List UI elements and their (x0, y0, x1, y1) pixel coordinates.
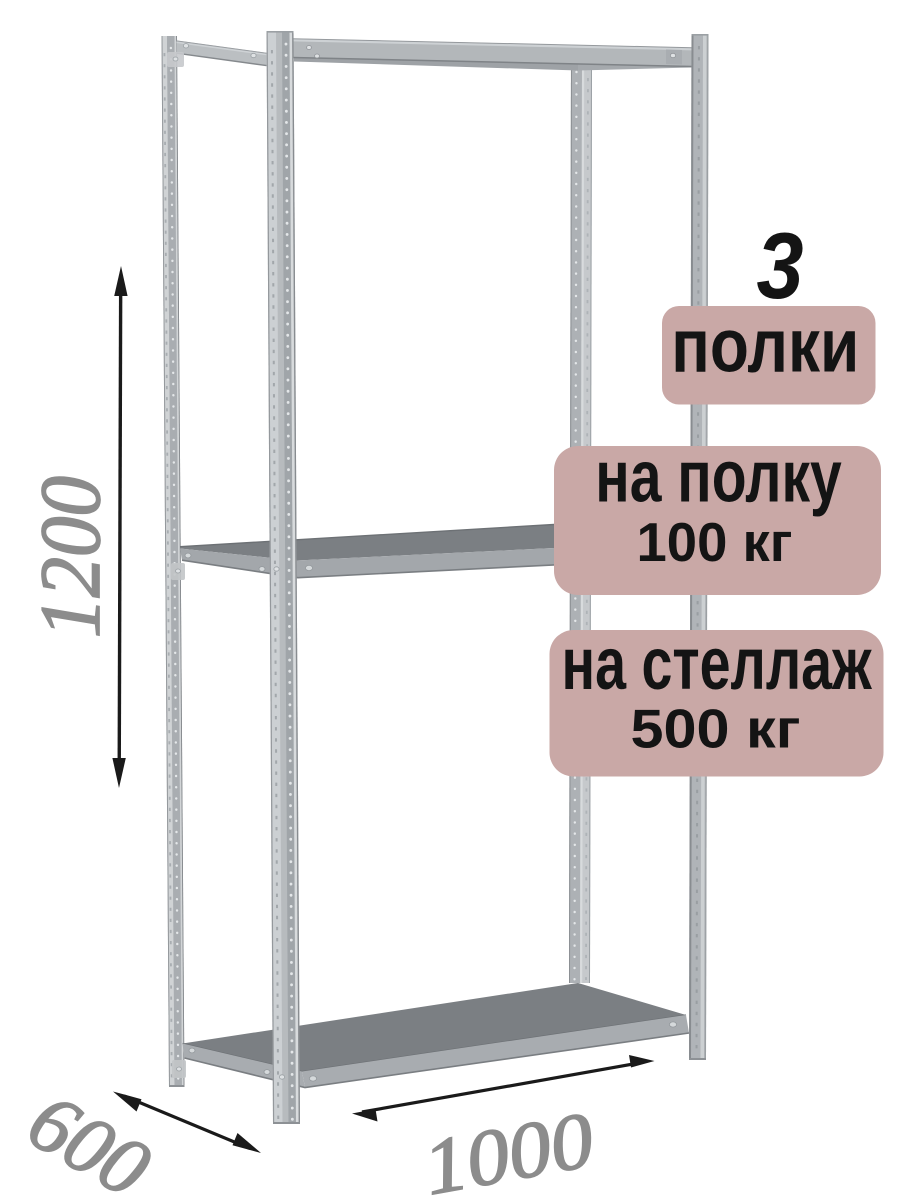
svg-text:100 кг: 100 кг (637, 511, 793, 573)
svg-text:1200: 1200 (22, 476, 118, 638)
svg-text:на стеллаж: на стеллаж (562, 622, 873, 705)
svg-text:500 кг: 500 кг (631, 698, 801, 760)
svg-text:3: 3 (757, 213, 804, 318)
svg-text:полки: полки (671, 304, 859, 389)
svg-text:на полку: на полку (595, 436, 842, 517)
